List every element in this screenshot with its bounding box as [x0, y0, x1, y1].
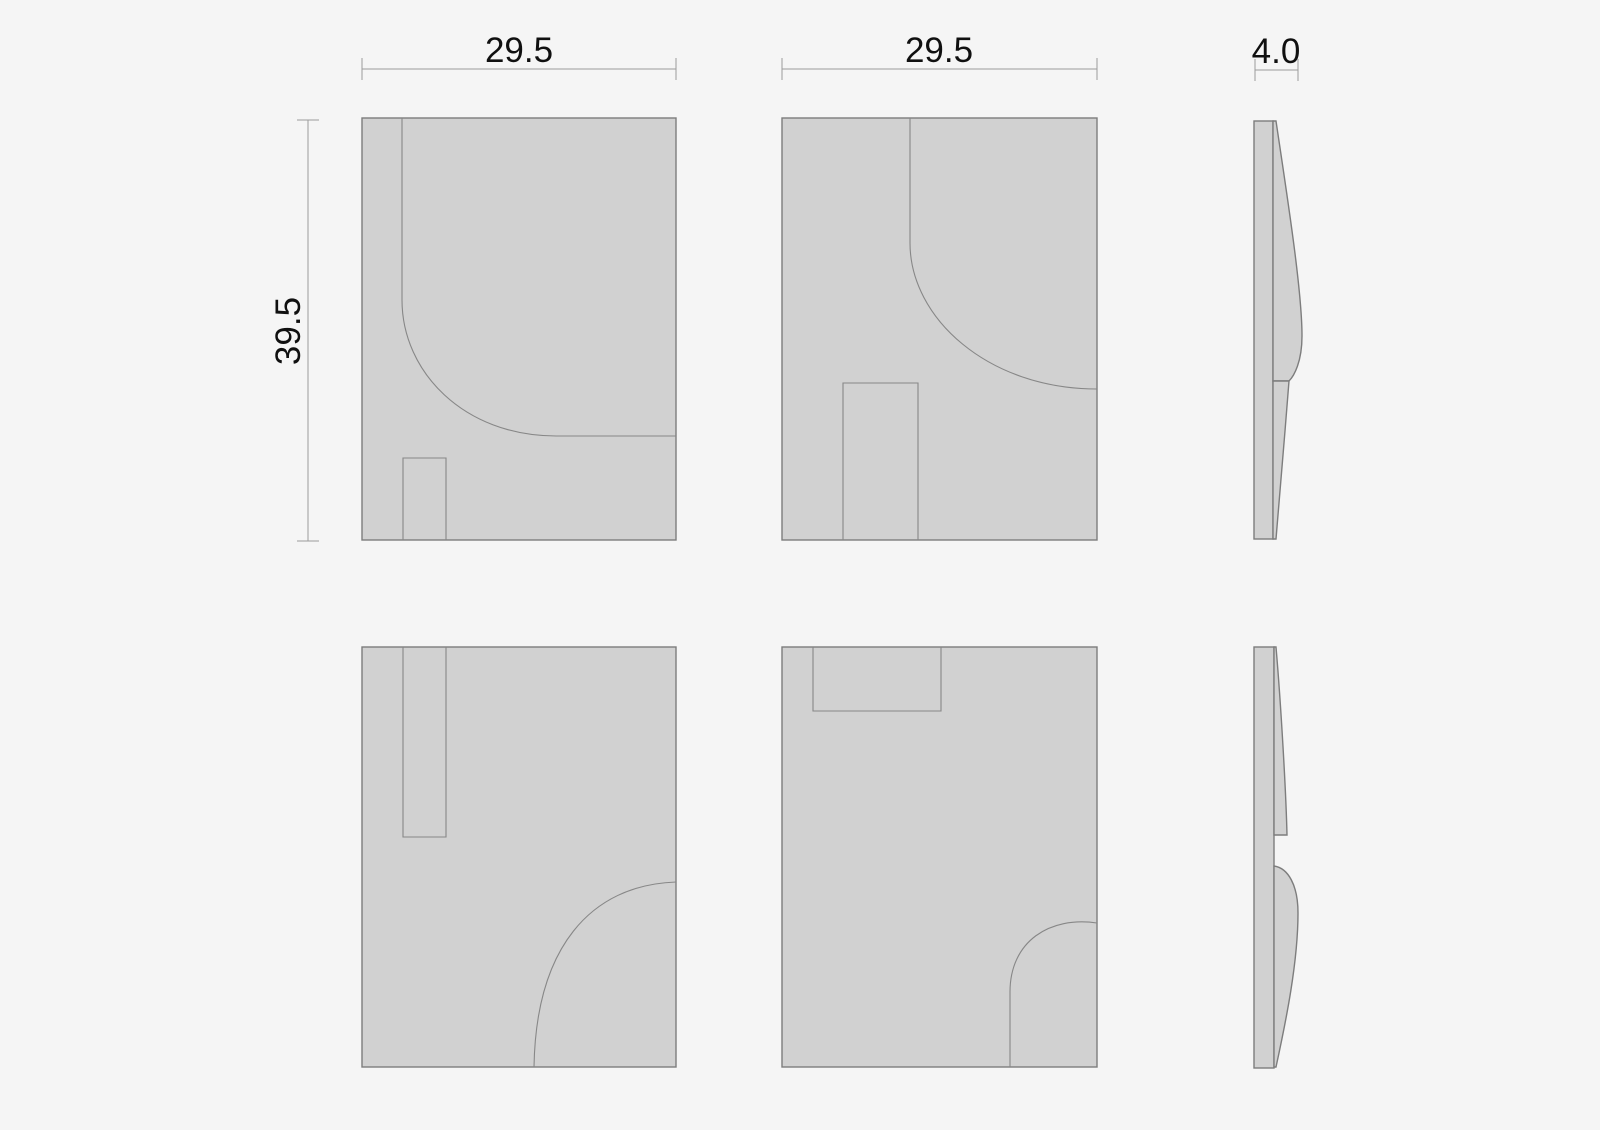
panel-technical-drawing: 29.5 29.5 4.0 39.5 — [0, 0, 1600, 1130]
side-bottom-plate — [1254, 647, 1274, 1068]
front-view-d — [782, 647, 1097, 1067]
front-view-b — [782, 118, 1097, 540]
dim-depth-label: 4.0 — [1252, 32, 1301, 71]
panel-a-outline — [362, 118, 676, 540]
dim-width-a-label: 29.5 — [485, 31, 553, 70]
side-top-plate — [1254, 121, 1273, 539]
front-view-c — [362, 647, 676, 1067]
dim-width-b-label: 29.5 — [905, 31, 973, 70]
dim-height-label: 39.5 — [269, 297, 308, 365]
panel-c-outline — [362, 647, 676, 1067]
panel-d-outline — [782, 647, 1097, 1067]
front-view-a — [362, 118, 676, 540]
panel-b-outline — [782, 118, 1097, 540]
